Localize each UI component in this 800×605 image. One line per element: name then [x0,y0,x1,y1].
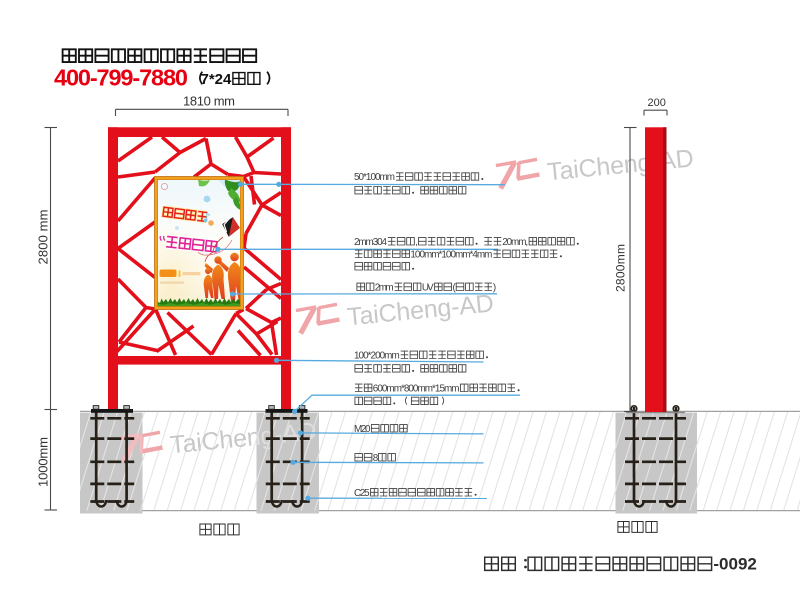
svg-text:C25: C25 [354,488,370,499]
svg-text:100mm*100mm*4mm: 100mm*100mm*4mm [410,249,492,260]
svg-text:7*24: 7*24 [201,71,233,88]
svg-text:2mm304: 2mm304 [354,237,388,248]
svg-text:1810 mm: 1810 mm [183,94,235,109]
svg-text:200: 200 [648,97,666,109]
svg-text:20mm,: 20mm, [502,237,528,248]
svg-text:M20: M20 [354,424,371,435]
svg-text:2mm: 2mm [375,282,394,293]
svg-text:8: 8 [373,453,379,464]
svg-text:,: , [415,237,418,248]
svg-text:400-799-7880: 400-799-7880 [54,65,188,91]
svg-text:1000mm: 1000mm [36,437,51,487]
svg-text:100*200mm: 100*200mm [354,350,400,361]
svg-text:UV: UV [422,282,434,293]
svg-text:50*100mm: 50*100mm [354,172,395,183]
svg-text:-0092: -0092 [713,554,757,573]
svg-text:2800mm: 2800mm [614,244,628,292]
svg-text:2800 mm: 2800 mm [36,210,51,265]
svg-text:): ) [493,282,496,293]
svg-text:600mm*800mm*15mm: 600mm*800mm*15mm [373,383,460,394]
